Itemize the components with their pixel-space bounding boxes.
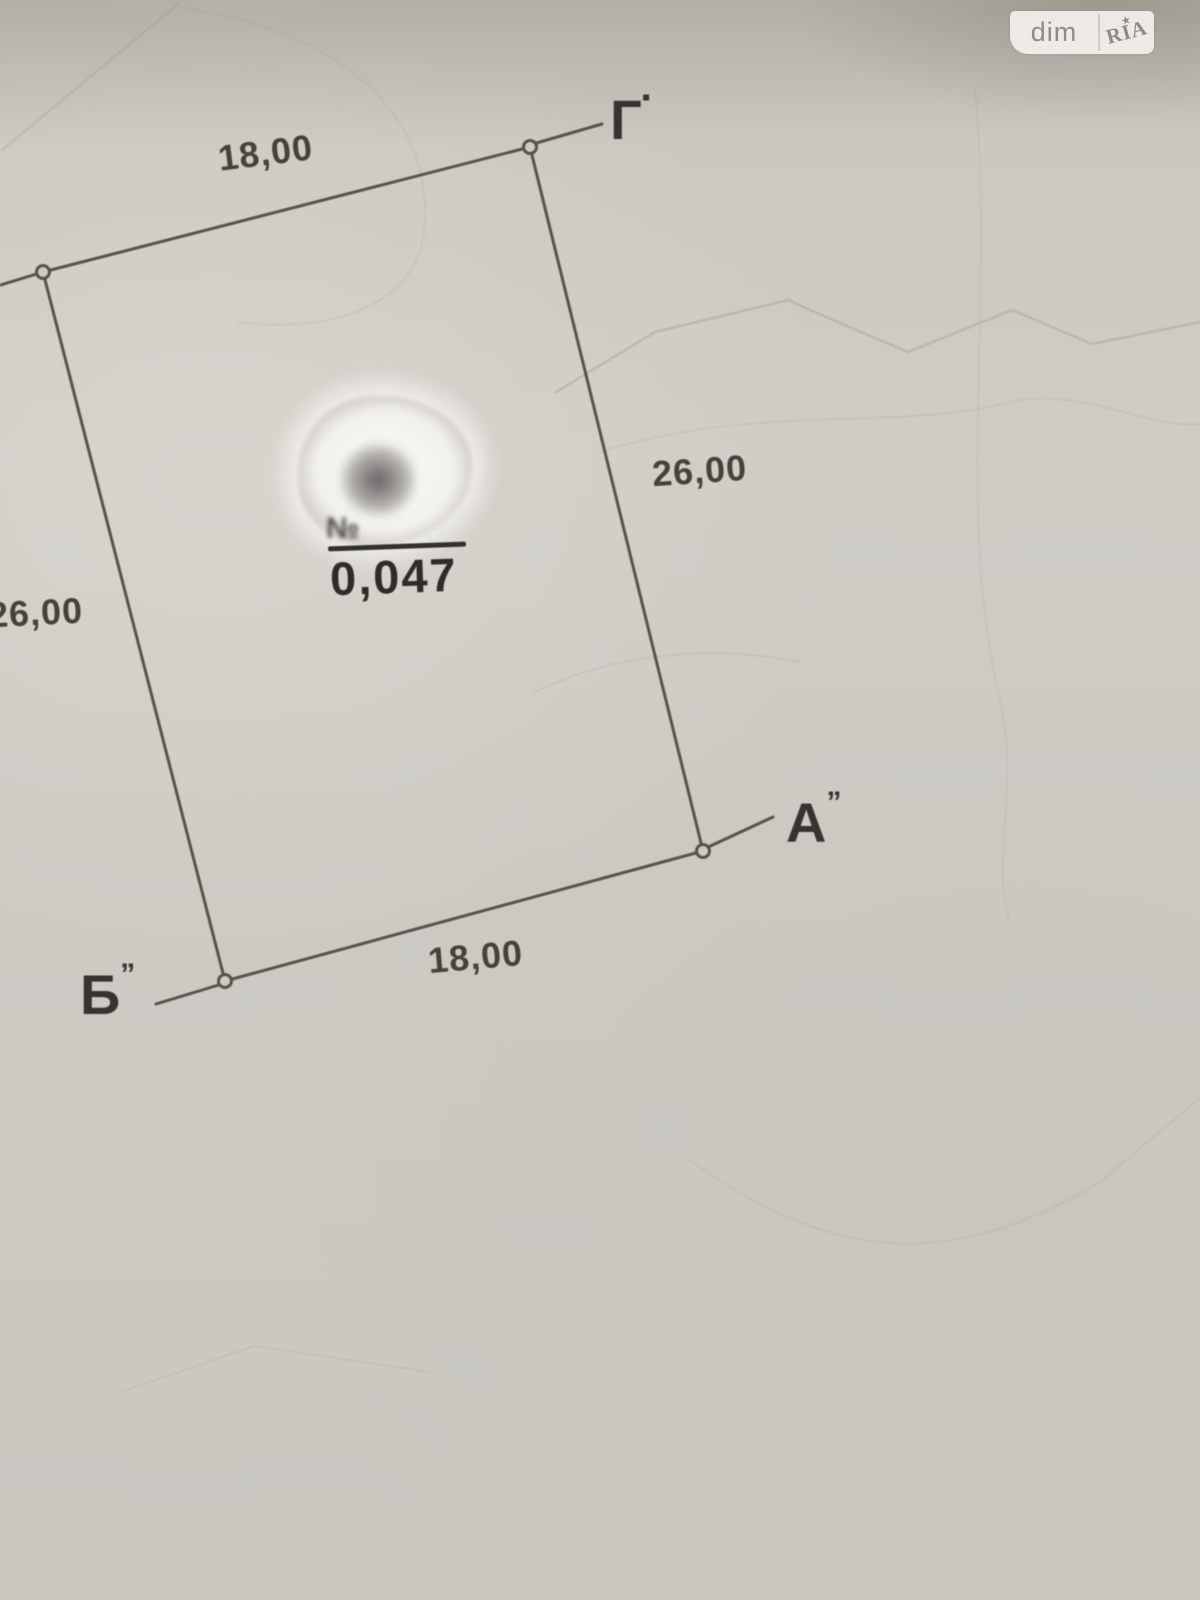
leader-line-corner-a [706,817,773,848]
paper-crease [2,4,178,150]
vertex-marker [697,845,710,858]
corner-letter-g: Г [610,88,642,151]
corner-mark-g: ▪ [642,84,649,111]
leader-line-corner-g [533,124,602,144]
watermark-ria-logo: ★ RIA [1100,11,1154,54]
vertex-marker [219,975,232,988]
area-value: 0,047 [329,547,458,606]
corner-label-g: Г▪ [610,84,648,152]
watermark-ria-text: RIA [1104,15,1151,50]
watermark-dim-text: dim [1010,11,1098,54]
obscured-plot-number: № [326,512,460,538]
paper-crease [690,1098,1200,1243]
plot-sketch: 18,00 26,00 26,00 18,00 Г▪ А” Б” № 0,047 [0,0,1200,1600]
paper-crease [600,398,1200,452]
dimension-left-label: 26,00 [0,590,84,637]
land-plot-plan-photo: 18,00 26,00 26,00 18,00 Г▪ А” Б” № 0,047… [0,0,1200,1600]
dim-ria-watermark: dim ★ RIA [1010,11,1154,54]
corner-label-b: Б” [80,958,133,1027]
vertex-marker [37,266,50,279]
paper-crease [120,1346,430,1392]
paper-crease [535,653,800,692]
dimension-bottom-label: 18,00 [426,932,524,982]
vertex-marker [524,141,537,154]
paper-crease [556,300,1200,392]
corner-label-a: А” [786,786,839,855]
plot-lines-layer [0,0,1200,1600]
corner-mark-a: ” [826,786,839,819]
corner-letter-b: Б [80,963,120,1026]
corner-letter-a: А [786,791,826,854]
paper-crease [975,90,1010,922]
dimension-right-label: 26,00 [651,447,749,496]
boundary-right-edge [530,147,703,851]
corner-mark-b: ” [120,958,133,991]
leader-line-corner-b [156,984,222,1004]
